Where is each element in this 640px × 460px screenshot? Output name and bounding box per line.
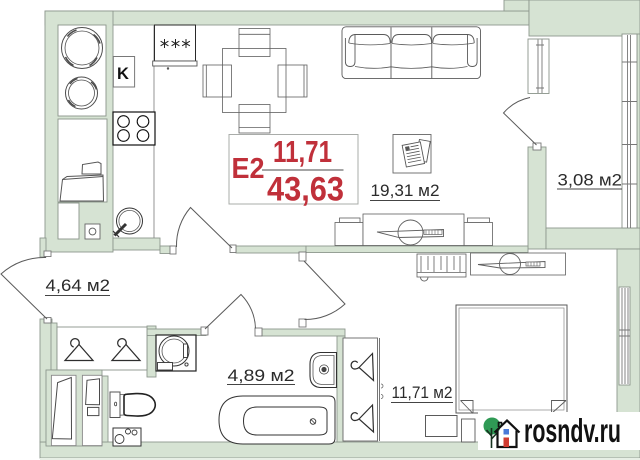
svg-text:11,71: 11,71 <box>273 134 332 169</box>
svg-text:3,08 м2: 3,08 м2 <box>558 172 623 190</box>
svg-text:4,64 м2: 4,64 м2 <box>46 277 111 295</box>
svg-text:rosndv.ru: rosndv.ru <box>524 412 621 449</box>
svg-text:K: K <box>117 65 129 83</box>
svg-text:19,31 м2: 19,31 м2 <box>371 182 440 200</box>
svg-text:E2: E2 <box>232 153 265 185</box>
svg-text:4,89 м2: 4,89 м2 <box>228 367 295 385</box>
svg-text:11,71 м2: 11,71 м2 <box>392 384 453 402</box>
svg-text:43,63: 43,63 <box>267 171 344 209</box>
